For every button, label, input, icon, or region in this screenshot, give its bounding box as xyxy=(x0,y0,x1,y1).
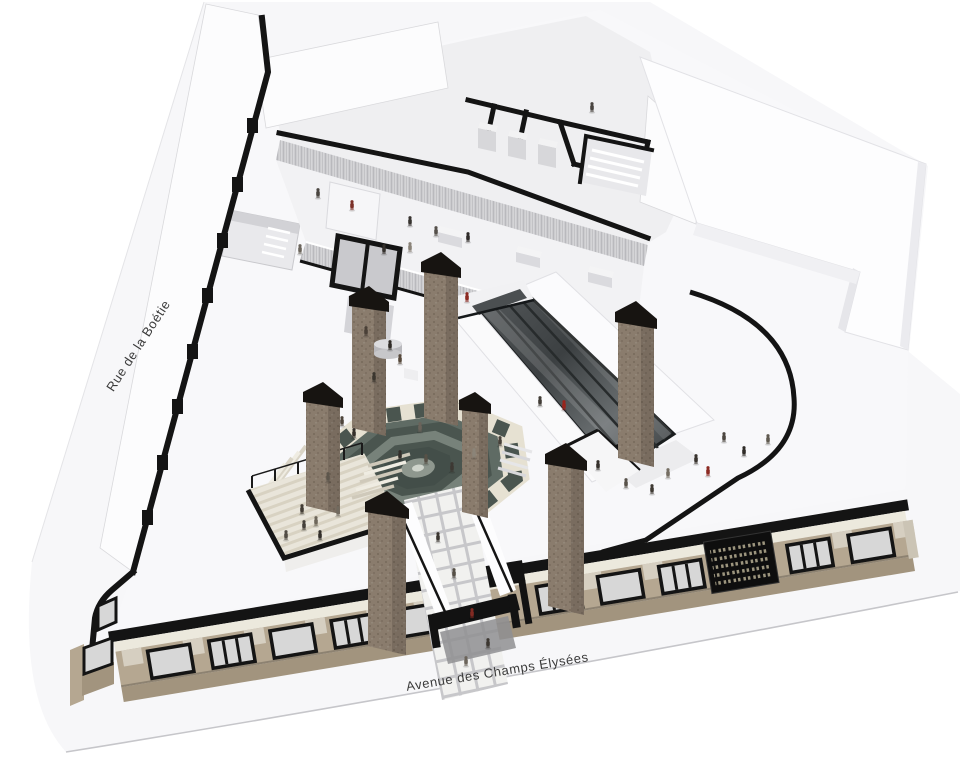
person-leg xyxy=(389,348,390,351)
person-shadow xyxy=(417,431,423,433)
person-shadow xyxy=(325,481,331,483)
person-shadow xyxy=(371,381,377,383)
person-leg xyxy=(437,540,438,543)
person-head xyxy=(562,400,565,403)
person-head xyxy=(352,428,355,431)
person-head xyxy=(314,516,317,519)
person-head xyxy=(418,422,421,425)
person-leg xyxy=(383,252,384,255)
person-body xyxy=(436,535,440,540)
person-leg xyxy=(488,646,489,649)
person-head xyxy=(388,340,391,343)
person-leg xyxy=(286,538,287,541)
person-body xyxy=(424,457,428,462)
person-head xyxy=(424,454,427,457)
person-head xyxy=(596,460,599,463)
person-leg xyxy=(695,462,696,465)
person-shadow xyxy=(339,425,345,427)
person-shadow xyxy=(589,111,595,113)
person-shadow xyxy=(537,405,543,407)
person-leg xyxy=(467,300,468,303)
person-head xyxy=(372,372,375,375)
person-head xyxy=(766,434,769,437)
person-body xyxy=(590,105,594,110)
person-head xyxy=(650,484,653,487)
person-leg xyxy=(598,468,599,471)
person-head xyxy=(706,466,709,469)
person-leg xyxy=(540,404,541,407)
person-leg xyxy=(410,250,411,253)
person-leg xyxy=(744,454,745,457)
person-body xyxy=(742,449,746,454)
person-body xyxy=(472,451,476,456)
person-leg xyxy=(341,424,342,427)
person-leg xyxy=(768,442,769,445)
person-body xyxy=(722,435,726,440)
pillar xyxy=(349,286,389,436)
person-body xyxy=(562,403,566,408)
person-shadow xyxy=(561,409,567,411)
person-head xyxy=(326,472,329,475)
person-leg xyxy=(304,528,305,531)
person-leg xyxy=(563,408,564,411)
person-head xyxy=(298,244,301,247)
person-shadow xyxy=(463,665,469,667)
person-leg xyxy=(315,524,316,527)
person-body xyxy=(418,425,422,430)
person-leg xyxy=(342,424,343,427)
person-leg xyxy=(409,224,410,227)
person-leg xyxy=(400,362,401,365)
person-shadow xyxy=(485,647,491,649)
person-shadow xyxy=(435,541,441,543)
person-body xyxy=(408,219,412,224)
person-leg xyxy=(410,224,411,227)
person-leg xyxy=(473,456,474,459)
person-leg xyxy=(303,528,304,531)
person-head xyxy=(486,638,489,641)
person-shadow xyxy=(315,197,321,199)
person-leg xyxy=(316,524,317,527)
person-shadow xyxy=(407,251,413,253)
person-shadow xyxy=(301,529,307,531)
person-leg xyxy=(564,408,565,411)
person-body xyxy=(650,487,654,492)
person-head xyxy=(364,326,367,329)
person-head xyxy=(498,436,501,439)
person-shadow xyxy=(397,459,403,461)
person-body xyxy=(336,509,340,514)
person-leg xyxy=(317,196,318,199)
person-body xyxy=(464,659,468,664)
person-head xyxy=(722,432,725,435)
pillar xyxy=(303,382,343,514)
person-shadow xyxy=(317,539,323,541)
person-leg xyxy=(302,512,303,515)
person-shadow xyxy=(741,455,747,457)
person-shadow xyxy=(469,617,475,619)
person-leg xyxy=(668,476,669,479)
person-head xyxy=(398,450,401,453)
person-shadow xyxy=(649,493,655,495)
person-shadow xyxy=(381,253,387,255)
person-leg xyxy=(327,480,328,483)
person-leg xyxy=(499,444,500,447)
person-leg xyxy=(400,458,401,461)
person-shadow xyxy=(595,469,601,471)
person-shadow xyxy=(363,335,369,337)
person-leg xyxy=(591,110,592,113)
person-body xyxy=(372,375,376,380)
person-leg xyxy=(338,514,339,517)
person-leg xyxy=(399,362,400,365)
person-shadow xyxy=(721,441,727,443)
person-leg xyxy=(453,576,454,579)
person-leg xyxy=(487,646,488,649)
person-leg xyxy=(399,458,400,461)
person-leg xyxy=(468,240,469,243)
pillar xyxy=(545,443,587,615)
person-leg xyxy=(337,514,338,517)
person-body xyxy=(465,295,469,300)
person-shadow xyxy=(283,539,289,541)
person-leg xyxy=(539,404,540,407)
person-head xyxy=(284,530,287,533)
person-head xyxy=(464,656,467,659)
person-leg xyxy=(353,436,354,439)
person-leg xyxy=(420,430,421,433)
person-leg xyxy=(467,240,468,243)
person-leg xyxy=(319,538,320,541)
person-shadow xyxy=(449,471,455,473)
person-body xyxy=(766,437,770,442)
person-leg xyxy=(318,196,319,199)
person-body xyxy=(340,419,344,424)
person-body xyxy=(350,203,354,208)
person-body xyxy=(706,469,710,474)
person-leg xyxy=(651,492,652,495)
person-head xyxy=(470,608,473,611)
person-body xyxy=(302,523,306,528)
person-shadow xyxy=(665,477,671,479)
person-shadow xyxy=(313,525,319,527)
person-head xyxy=(472,448,475,451)
pillar xyxy=(615,301,657,467)
person-body xyxy=(434,229,438,234)
person-body xyxy=(538,399,542,404)
person-body xyxy=(452,571,456,576)
person-leg xyxy=(390,348,391,351)
pillar xyxy=(421,252,461,426)
person-shadow xyxy=(351,437,357,439)
person-shadow xyxy=(423,463,429,465)
person-shadow xyxy=(407,225,413,227)
person-leg xyxy=(365,334,366,337)
person-leg xyxy=(743,454,744,457)
person-shadow xyxy=(299,513,305,515)
person-leg xyxy=(299,252,300,255)
person-leg xyxy=(373,380,374,383)
person-leg xyxy=(438,540,439,543)
person-leg xyxy=(708,474,709,477)
person-head xyxy=(408,242,411,245)
person-leg xyxy=(724,440,725,443)
person-body xyxy=(284,533,288,538)
person-shadow xyxy=(497,445,503,447)
person-body xyxy=(388,343,392,348)
person-body xyxy=(408,245,412,250)
person-leg xyxy=(320,538,321,541)
person-body xyxy=(352,431,356,436)
person-body xyxy=(694,457,698,462)
pillar xyxy=(365,491,409,655)
person-leg xyxy=(352,208,353,211)
person-leg xyxy=(466,664,467,667)
person-leg xyxy=(592,110,593,113)
person-head xyxy=(465,292,468,295)
person-shadow xyxy=(349,209,355,211)
person-leg xyxy=(707,474,708,477)
person-head xyxy=(302,520,305,523)
person-body xyxy=(364,329,368,334)
person-head xyxy=(666,468,669,471)
person-head xyxy=(350,200,353,203)
person-body xyxy=(382,247,386,252)
person-body xyxy=(450,465,454,470)
person-body xyxy=(596,463,600,468)
person-shadow xyxy=(433,235,439,237)
person-leg xyxy=(328,480,329,483)
person-body xyxy=(300,507,304,512)
person-body xyxy=(666,471,670,476)
person-shadow xyxy=(765,443,771,445)
person-leg xyxy=(465,664,466,667)
person-head xyxy=(452,568,455,571)
person-body xyxy=(298,247,302,252)
person-shadow xyxy=(465,241,471,243)
axonometric-rendering: Rue de la Boétie Avenue des Champs Élysé… xyxy=(0,0,960,773)
person-leg xyxy=(767,442,768,445)
person-leg xyxy=(435,234,436,237)
person-head xyxy=(336,506,339,509)
person-leg xyxy=(366,334,367,337)
person-leg xyxy=(626,486,627,489)
person-leg xyxy=(351,208,352,211)
person-leg xyxy=(471,616,472,619)
person-shadow xyxy=(464,301,470,303)
person-head xyxy=(742,446,745,449)
person-leg xyxy=(466,300,467,303)
person-head xyxy=(434,226,437,229)
person-head xyxy=(538,396,541,399)
person-shadow xyxy=(623,487,629,489)
person-head xyxy=(624,478,627,481)
person-leg xyxy=(597,468,598,471)
person-head xyxy=(590,102,593,105)
person-shadow xyxy=(451,577,457,579)
person-head xyxy=(316,188,319,191)
person-body xyxy=(624,481,628,486)
person-leg xyxy=(652,492,653,495)
person-leg xyxy=(409,250,410,253)
person-leg xyxy=(419,430,420,433)
person-head xyxy=(398,354,401,357)
person-shadow xyxy=(471,457,477,459)
person-leg xyxy=(300,252,301,255)
person-leg xyxy=(285,538,286,541)
person-shadow xyxy=(397,363,403,365)
person-body xyxy=(316,191,320,196)
person-head xyxy=(318,530,321,533)
person-leg xyxy=(452,470,453,473)
person-leg xyxy=(301,512,302,515)
person-leg xyxy=(474,456,475,459)
facade-pier xyxy=(121,647,143,666)
person-shadow xyxy=(297,253,303,255)
person-leg xyxy=(374,380,375,383)
person-body xyxy=(318,533,322,538)
person-body xyxy=(398,357,402,362)
person-leg xyxy=(667,476,668,479)
person-head xyxy=(694,454,697,457)
person-body xyxy=(314,519,318,524)
person-head xyxy=(436,532,439,535)
person-body xyxy=(466,235,470,240)
person-leg xyxy=(436,234,437,237)
person-leg xyxy=(426,462,427,465)
person-shadow xyxy=(705,475,711,477)
person-leg xyxy=(454,576,455,579)
person-leg xyxy=(354,436,355,439)
person-head xyxy=(300,504,303,507)
person-leg xyxy=(425,462,426,465)
person-head xyxy=(466,232,469,235)
person-leg xyxy=(500,444,501,447)
person-head xyxy=(382,244,385,247)
person-shadow xyxy=(335,515,341,517)
person-head xyxy=(450,462,453,465)
person-leg xyxy=(384,252,385,255)
person-leg xyxy=(696,462,697,465)
person-body xyxy=(498,439,502,444)
person-body xyxy=(398,453,402,458)
person-body xyxy=(326,475,330,480)
person-leg xyxy=(625,486,626,489)
person-shadow xyxy=(693,463,699,465)
person-head xyxy=(408,216,411,219)
person-body xyxy=(486,641,490,646)
person-shadow xyxy=(387,349,393,351)
person-leg xyxy=(472,616,473,619)
person-head xyxy=(340,416,343,419)
person-body xyxy=(470,611,474,616)
person-leg xyxy=(723,440,724,443)
person-leg xyxy=(451,470,452,473)
